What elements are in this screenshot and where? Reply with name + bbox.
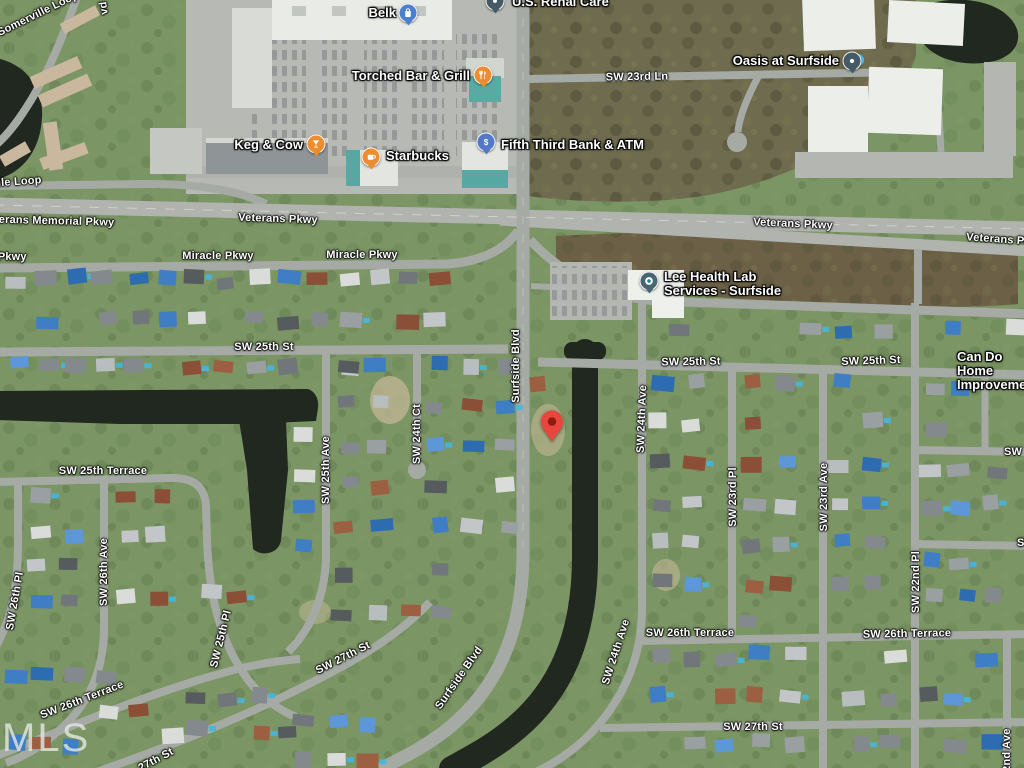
road-label-sw-27th-st-1: SW 27th St xyxy=(723,721,782,733)
road-label-ville-loop: ville Loop xyxy=(0,174,42,190)
road-label-miracle-pkwy-1: Miracle Pkwy xyxy=(182,250,254,262)
road-label-veterans-pkwy-3: Veterans Pkwy xyxy=(966,231,1024,249)
road-label-sw-25th-st-2: SW 25th St xyxy=(661,355,721,368)
road-label-sw-24th-ave-south: SW 24th Ave xyxy=(600,618,632,686)
road-label-sw-25th-ave: SW 25th Ave xyxy=(320,436,332,504)
restaurant-icon xyxy=(474,66,493,85)
satellite-map[interactable]: Somerville Loopvdville LoopVeterans Memo… xyxy=(0,0,1024,768)
road-label-sw-26th-pl: SW 26th Pl xyxy=(4,571,26,631)
map-labels-layer: Somerville Loopvdville LoopVeterans Memo… xyxy=(0,0,1024,768)
poi-label-lee-health-lab-services[interactable]: Lee Health Lab Services - Surfside xyxy=(664,270,781,298)
road-label-sw-26th-terrace-2: SW 26th Terrace xyxy=(863,627,952,641)
poi-marker-fifth-third-bank-atm[interactable]: $ xyxy=(477,133,496,152)
bar-icon xyxy=(307,135,326,154)
poi-label-keg-and-cow[interactable]: Keg & Cow xyxy=(234,138,303,152)
health-pin-icon xyxy=(640,272,659,291)
road-label-veterans-pkwy-2: Veterans Pkwy xyxy=(753,216,833,231)
poi-label-can-do-home-improvement[interactable]: Can Do Home Improvement xyxy=(957,350,1024,392)
poi-marker-starbucks[interactable] xyxy=(362,148,381,167)
shopping-bag-icon xyxy=(399,4,418,23)
poi-marker-lee-health-lab-services[interactable] xyxy=(640,272,659,291)
road-label-sw-26th-terrace-sw: SW 26th Terrace xyxy=(39,679,126,722)
poi-marker-torched-bar-and-grill[interactable] xyxy=(474,66,493,85)
road-label-sw-24th-ct: SW 24th Ct xyxy=(411,404,423,464)
road-label-sw-25th-pl: SW 25th Pl xyxy=(208,609,234,669)
road-label-miracle-pkwy-2: Miracle Pkwy xyxy=(326,249,398,261)
road-label-sw-26th-ave: SW 26th Ave xyxy=(98,538,110,606)
road-label-veterans-memorial-pkwy: Veterans Memorial Pkwy xyxy=(0,213,115,228)
svg-text:$: $ xyxy=(484,138,489,147)
coffee-cup-icon xyxy=(362,148,381,167)
poi-label-torched-bar-and-grill[interactable]: Torched Bar & Grill xyxy=(352,69,470,83)
road-label-sw-partial-2: SW xyxy=(1017,537,1024,549)
poi-label-us-renal-care[interactable]: U.S. Renal Care xyxy=(512,0,609,9)
road-label-veterans-pkwy-1: Veterans Pkwy xyxy=(238,212,318,227)
poi-label-belk[interactable]: Belk xyxy=(369,6,396,20)
road-label-sw-25th-st-1: SW 25th St xyxy=(234,341,293,353)
medical-pin-icon xyxy=(486,0,505,11)
road-label-sw-26th-terrace-1: SW 26th Terrace xyxy=(646,627,734,639)
road-label-miracle-pkwy-partial: Miracle Pkwy xyxy=(0,251,27,263)
poi-marker-keg-and-cow[interactable] xyxy=(307,135,326,154)
road-label-sw-partial-1: SW xyxy=(1004,446,1022,458)
road-label-sw-22nd-pl: SW 22nd Pl xyxy=(910,551,922,613)
road-label-sw-25th-terrace: SW 25th Terrace xyxy=(59,465,147,477)
poi-marker-oasis-at-surfside[interactable] xyxy=(843,52,862,71)
road-label-somerville-loop: Somerville Loop xyxy=(0,0,80,39)
place-dot-icon xyxy=(843,52,862,71)
road-label-sw-23rd-ln: SW 23rd Ln xyxy=(606,70,669,83)
road-label-sw-27th-st-sw: SW 27th St xyxy=(314,639,372,677)
road-label-sw-27th-st-partial: 27th St xyxy=(136,746,175,768)
road-label-sw-23rd-pl: SW 23rd Pl xyxy=(727,467,739,526)
poi-label-oasis-at-surfside[interactable]: Oasis at Surfside xyxy=(733,54,839,68)
poi-label-starbucks[interactable]: Starbucks xyxy=(386,149,449,163)
dollar-icon: $ xyxy=(477,133,496,152)
road-label-sw-22nd-ave: SW 22nd Ave xyxy=(1001,728,1013,768)
road-label-sw-23rd-ave: SW 23rd Ave xyxy=(818,463,830,532)
poi-marker-us-renal-care[interactable] xyxy=(486,0,505,11)
road-label-sw-24th-ave-north: SW 24th Ave xyxy=(635,385,649,453)
destination-pin[interactable] xyxy=(540,409,564,448)
road-label-sw-25th-st-3: SW 25th St xyxy=(841,354,901,368)
road-label-blvd-partial: vd xyxy=(97,1,111,16)
poi-marker-belk[interactable] xyxy=(399,4,418,23)
poi-label-fifth-third-bank-atm[interactable]: Fifth Third Bank & ATM xyxy=(501,138,644,152)
road-label-surfside-blvd-south: Surfside Blvd xyxy=(433,644,485,711)
road-label-surfside-blvd-north: Surfside Blvd xyxy=(510,329,522,403)
mls-watermark: MLS xyxy=(2,716,90,761)
